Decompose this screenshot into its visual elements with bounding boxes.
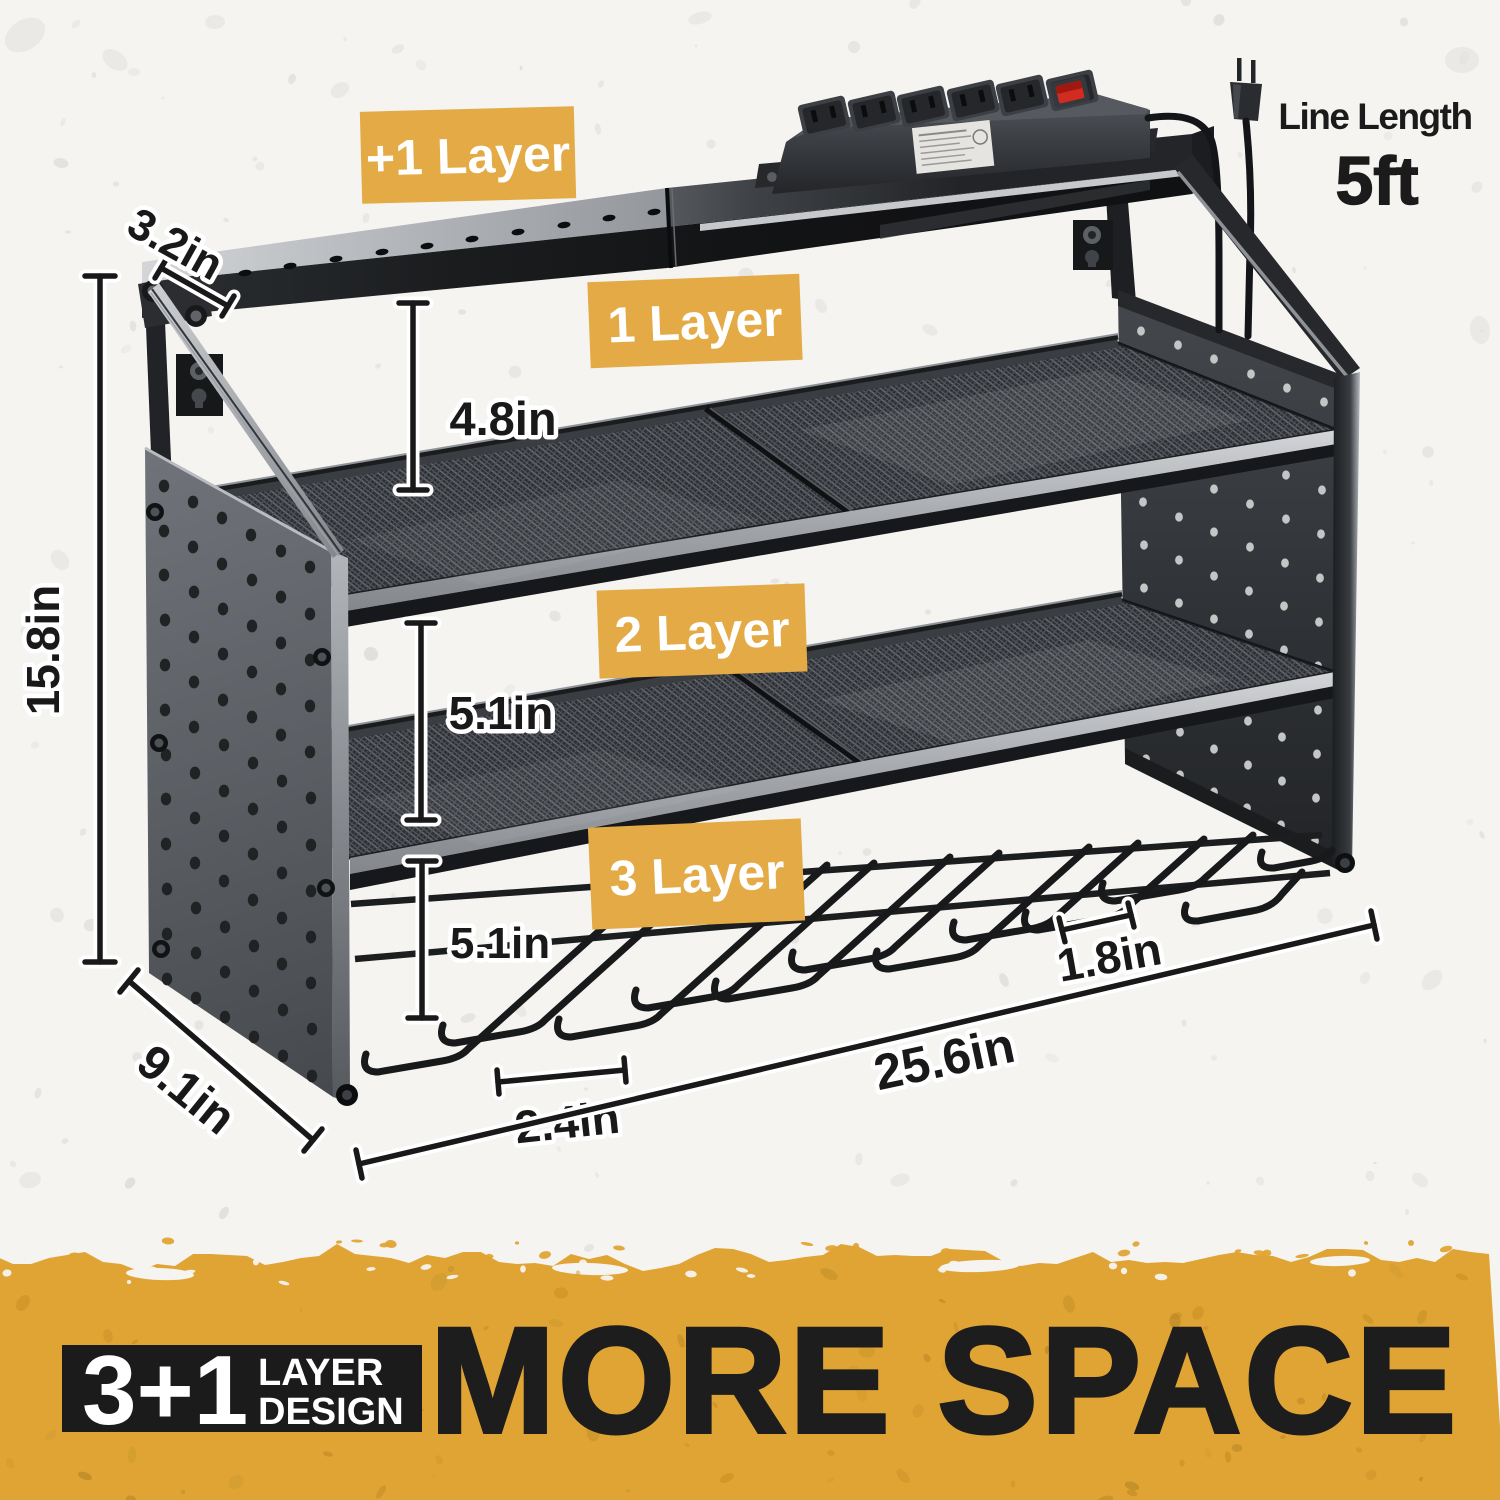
svg-text:3 Layer: 3 Layer [608,843,785,907]
svg-text:2 Layer: 2 Layer [614,601,791,663]
svg-text:MORE SPACE: MORE SPACE [430,1296,1456,1464]
svg-text:DESIGN: DESIGN [258,1391,404,1433]
svg-text:LAYER: LAYER [258,1352,383,1394]
svg-text:5.1in: 5.1in [450,919,550,968]
svg-text:3+1: 3+1 [82,1335,248,1445]
svg-text:+1 Layer: +1 Layer [365,125,571,186]
svg-text:Line Length: Line Length [1278,96,1471,137]
svg-text:1 Layer: 1 Layer [606,291,783,354]
svg-text:5ft: 5ft [1335,143,1418,219]
svg-text:5.1in: 5.1in [449,687,554,739]
svg-text:4.8in: 4.8in [449,392,556,445]
svg-text:15.8in: 15.8in [17,585,69,715]
